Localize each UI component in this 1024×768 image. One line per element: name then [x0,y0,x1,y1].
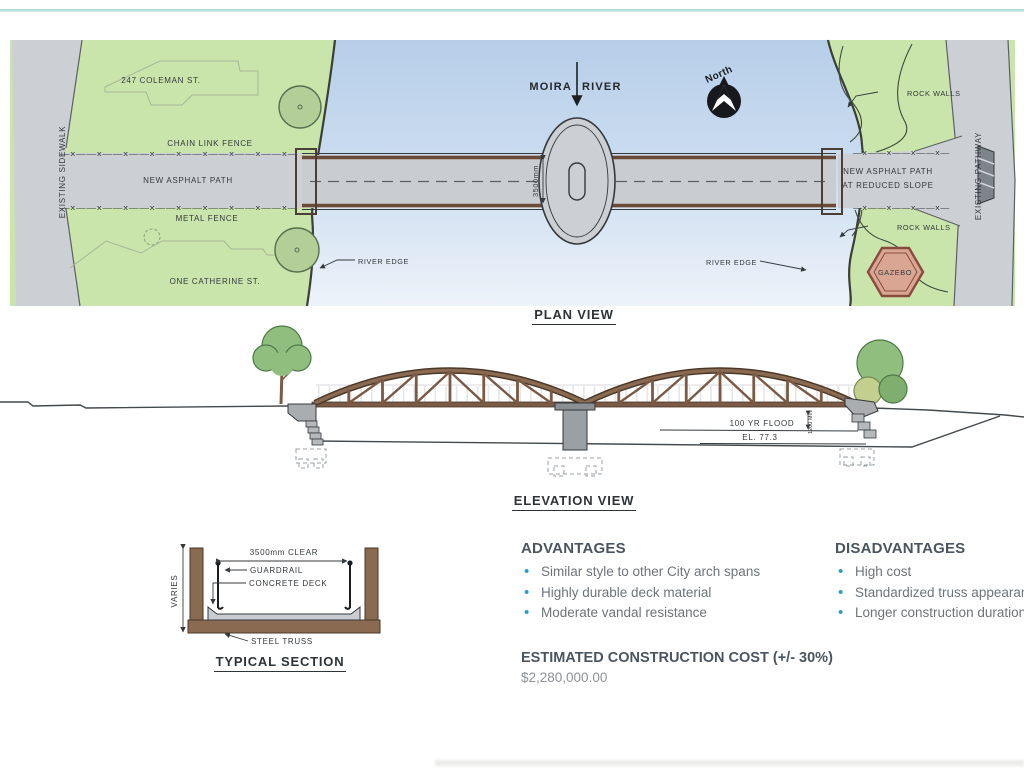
min-clearance-dimension: 1200 MIN [808,410,814,434]
chain-link-fence-line: —x——x——x——x——x——x——x——x——x— [60,149,298,158]
fence-line-right-top: —x——x——x——x— [853,148,950,157]
elevation-view-title: ELEVATION VIEW [474,493,674,511]
section-concrete-deck [208,607,360,620]
advantages-column: ADVANTAGES Similar style to other City a… [521,540,821,624]
plan-view-drawing: —x——x——x——x——x——x——x——x——x— —x——x——x——x—… [10,40,1015,306]
disadvantages-column: DISADVANTAGES High cost Standardized tru… [835,540,1024,624]
gazebo-label: GAZEBO [878,268,912,277]
list-item: High cost [835,562,1024,583]
flood-el-label: EL. 77.3 [742,433,777,442]
chain-link-fence-label: CHAIN LINK FENCE [167,139,252,148]
disadvantages-list: High cost Standardized truss appearance … [835,562,1024,624]
flood-annotation: 100 YR FLOOD EL. 77.3 1200 MIN [660,410,866,444]
guardrail-label: GUARDRAIL [250,566,303,575]
bottom-edge-artifact [435,760,1024,766]
section-dimension-varies: VARIES [170,549,183,632]
cost-heading: ESTIMATED CONSTRUCTION COST (+/- 30%) [521,650,941,666]
advantages-heading: ADVANTAGES [521,540,821,557]
section-dimension-clear: 3500mm CLEAR [221,548,347,561]
flood-label: 100 YR FLOOD [730,419,795,428]
concrete-deck-label: CONCRETE DECK [249,579,327,588]
existing-pathway-label: EXISTING PATHWAY [974,132,983,220]
center-pier [548,403,602,476]
elevation-bushes-right [854,340,907,405]
catherine-label: ONE CATHERINE ST. [170,277,261,286]
reduced-slope-label-1: NEW ASPHALT PATH [843,167,933,176]
rock-walls-label-bottom: ROCK WALLS [897,223,951,232]
metal-fence-label: METAL FENCE [176,214,239,223]
new-asphalt-path-label: NEW ASPHALT PATH [143,176,233,185]
list-item: Highly durable deck material [521,583,821,604]
coleman-label: 247 COLEMAN ST. [121,76,200,85]
river-label: RIVER [582,81,622,93]
elevation-tree-left [253,326,311,404]
abutment-right [840,398,878,466]
clear-width-label: 3500mm CLEAR [250,548,318,557]
typical-section-title: TYPICAL SECTION [190,654,370,672]
river-edge-label-left: RIVER EDGE [358,257,409,266]
fence-line-right-bottom: —x——x——x——x— [853,203,950,212]
list-item: Similar style to other City arch spans [521,562,821,583]
reduced-slope-label-2: AT REDUCED SLOPE [842,181,933,190]
metal-fence-line: —x——x——x——x——x——x——x——x——x— [60,203,298,212]
cost-value: $2,280,000.00 [521,670,941,685]
abutment-left [288,404,326,468]
varies-label: VARIES [170,575,179,608]
moira-label: MOIRA [529,81,572,93]
cost-block: ESTIMATED CONSTRUCTION COST (+/- 30%) $2… [521,650,941,685]
typical-section-drawing: 3500mm CLEAR VARIES GUARDRAIL CONCRETE D… [155,540,425,652]
list-item: Longer construction duration [835,603,1024,624]
list-item: Moderate vandal resistance [521,603,821,624]
slide: —x——x——x——x——x——x——x——x——x— —x——x——x——x—… [0,0,1024,768]
river-edge-label-right: RIVER EDGE [706,258,757,267]
elevation-view-drawing: 100 YR FLOOD EL. 77.3 1200 MIN [0,318,1024,490]
lookout-oval [539,118,615,244]
rock-walls-label-top: ROCK WALLS [907,89,961,98]
top-accent-line [0,9,1024,12]
min-clearance-label: 1200 MIN [808,410,814,434]
existing-sidewalk-label: EXISTING SIDEWALK [58,126,67,219]
list-item: Standardized truss appearance [835,583,1024,604]
steel-truss-label: STEEL TRUSS [251,637,313,646]
deck-width-label: 3500mm [531,165,540,197]
disadvantages-heading: DISADVANTAGES [835,540,1024,557]
advantages-list: Similar style to other City arch spans H… [521,562,821,624]
